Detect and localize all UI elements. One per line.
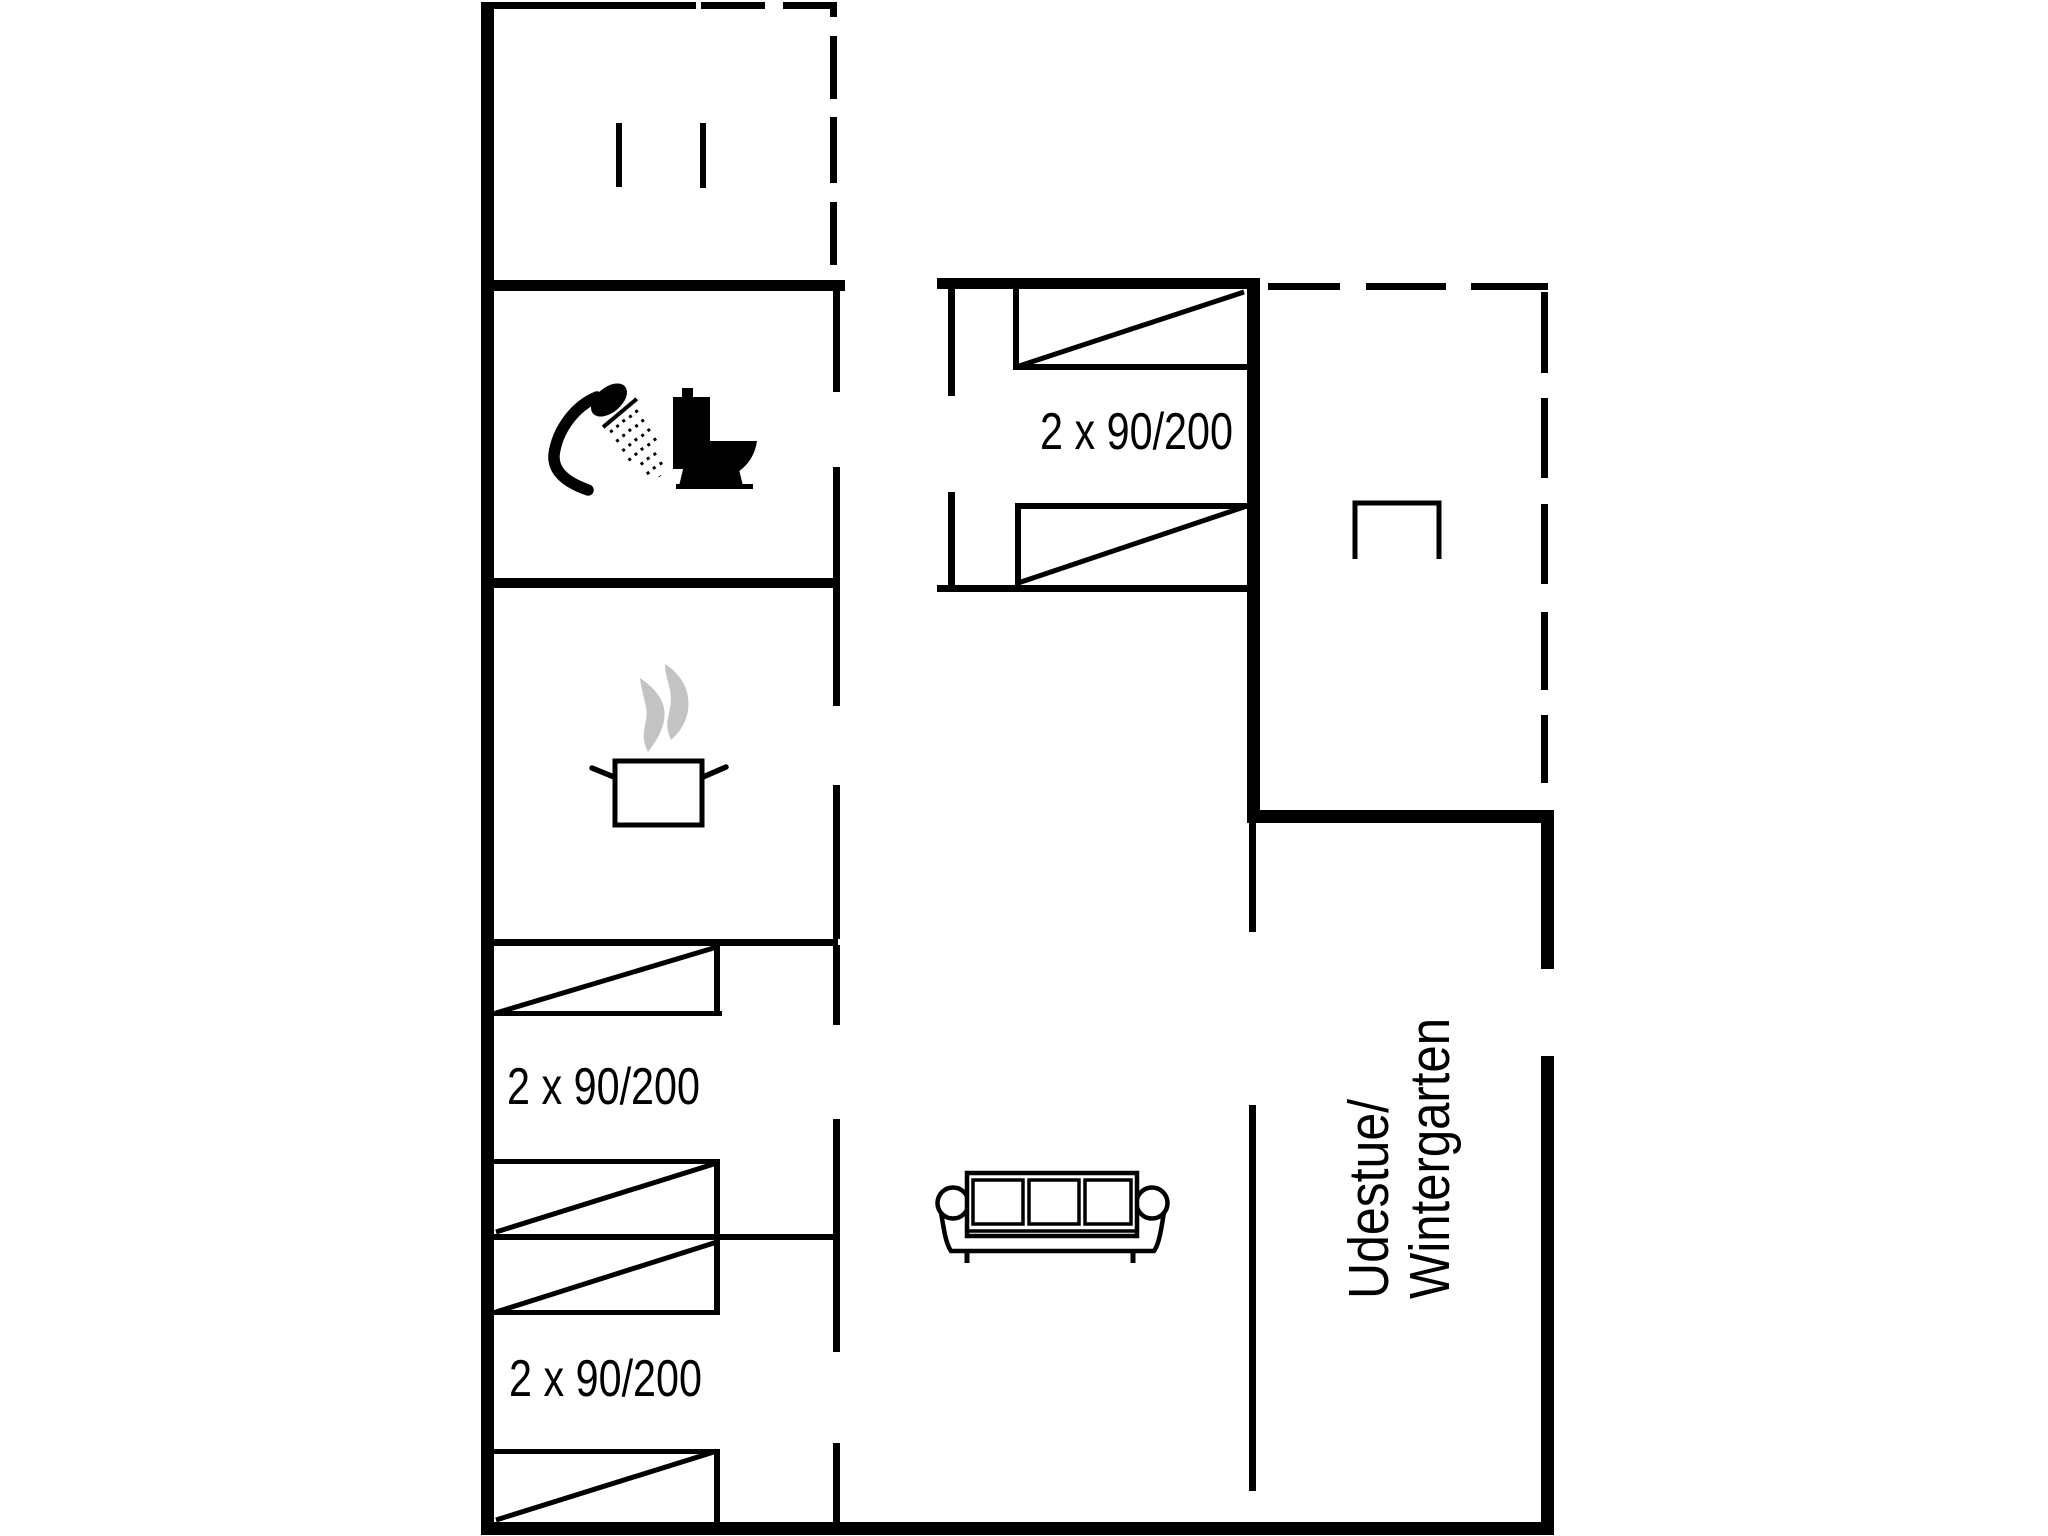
svg-text:2 x 90/200: 2 x 90/200 bbox=[509, 1350, 702, 1408]
svg-text:2 x 90/200: 2 x 90/200 bbox=[1040, 403, 1233, 461]
svg-text:2 x 90/200: 2 x 90/200 bbox=[507, 1058, 700, 1116]
